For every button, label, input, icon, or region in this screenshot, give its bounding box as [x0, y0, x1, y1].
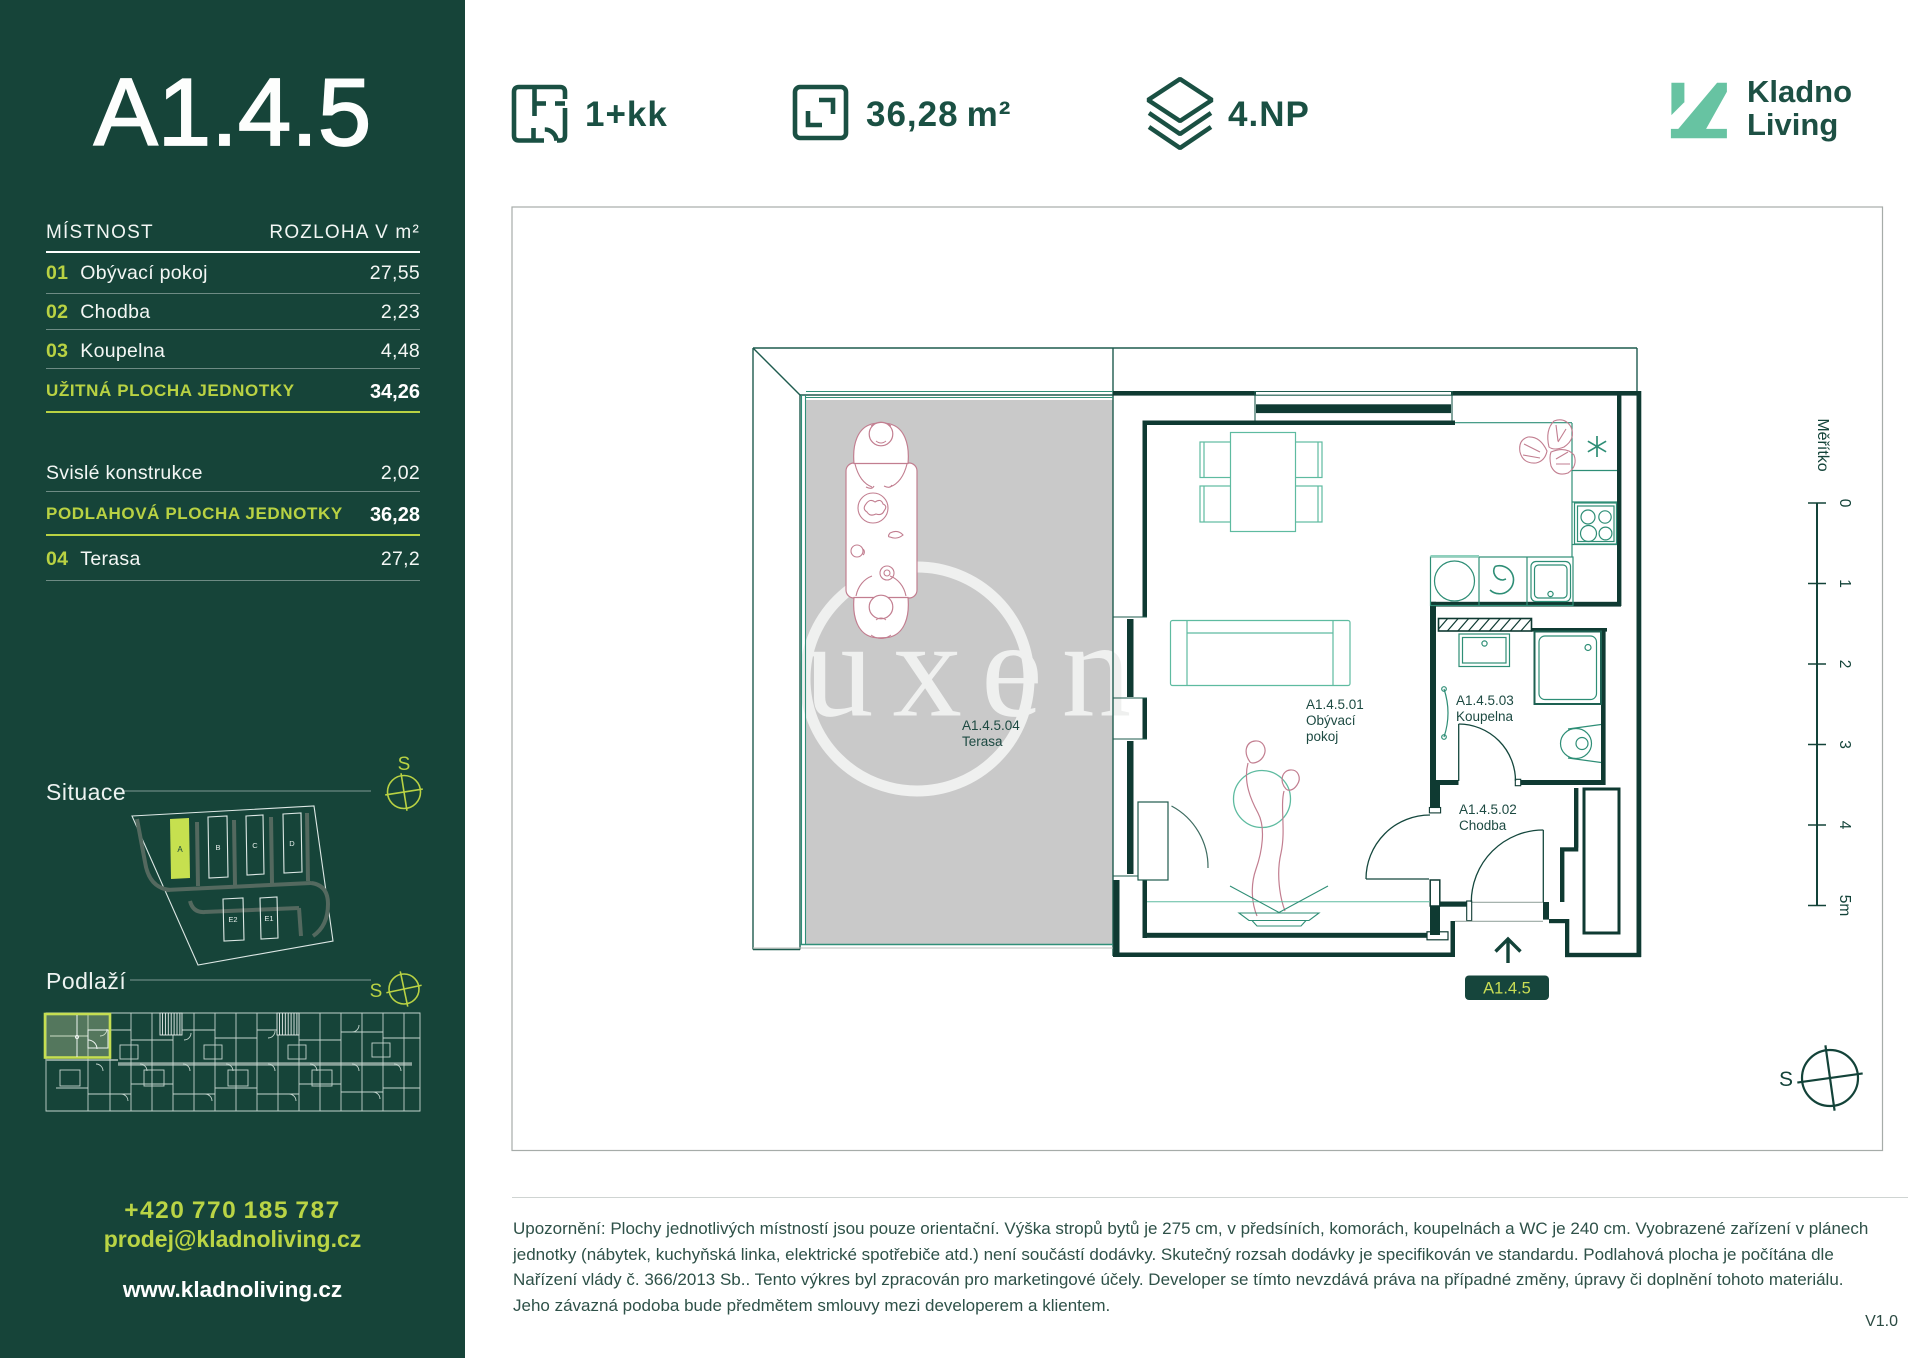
svg-text:3: 3 [1836, 740, 1853, 749]
svg-text:Terasa: Terasa [962, 734, 1003, 749]
svg-text:A1.4.5.02: A1.4.5.02 [1459, 802, 1517, 817]
svg-text:Měřítko: Měřítko [1814, 418, 1831, 471]
svg-text:4: 4 [1836, 821, 1853, 830]
svg-text:5m: 5m [1836, 895, 1853, 917]
svg-text:Chodba: Chodba [1459, 818, 1507, 833]
svg-text:A1.4.5.01: A1.4.5.01 [1306, 697, 1364, 712]
svg-text:A1.4.5: A1.4.5 [1483, 980, 1531, 998]
svg-text:1: 1 [1836, 579, 1853, 588]
svg-text:Koupelna: Koupelna [1456, 709, 1514, 724]
svg-text:A1.4.5.03: A1.4.5.03 [1456, 693, 1514, 708]
svg-text:pokoj: pokoj [1306, 729, 1338, 744]
svg-text:A1.4.5.04: A1.4.5.04 [962, 718, 1020, 733]
svg-text:0: 0 [1836, 499, 1853, 508]
svg-text:Obývací: Obývací [1306, 713, 1356, 728]
svg-text:S: S [1779, 1068, 1793, 1091]
svg-text:2: 2 [1836, 660, 1853, 669]
